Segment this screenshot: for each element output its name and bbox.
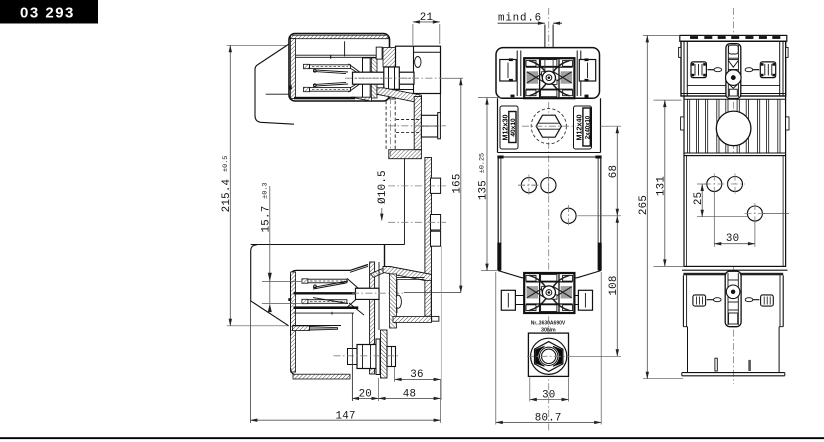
- svg-text:135 ±0.25: 135 ±0.25: [478, 153, 490, 200]
- svg-text:40x10: 40x10: [510, 118, 517, 137]
- svg-text:48: 48: [403, 389, 416, 401]
- svg-text:36: 36: [410, 369, 423, 381]
- svg-text:30: 30: [726, 233, 739, 245]
- svg-text:21: 21: [420, 12, 433, 24]
- svg-text:108: 108: [608, 275, 620, 295]
- svg-text:Ø10.5: Ø10.5: [377, 170, 389, 204]
- svg-text:15.7 ±0.3: 15.7 ±0.3: [261, 183, 273, 233]
- svg-text:2x40x10: 2x40x10: [585, 115, 591, 139]
- svg-text:68: 68: [608, 165, 620, 178]
- svg-text:20: 20: [359, 389, 372, 401]
- svg-text:265: 265: [638, 195, 650, 215]
- svg-text:30: 30: [542, 389, 555, 401]
- svg-text:mind.6: mind.6: [498, 13, 542, 25]
- svg-text:215.4 ±0.5: 215.4 ±0.5: [221, 156, 233, 213]
- svg-text:M12x40: M12x40: [574, 115, 583, 141]
- svg-text:03 293: 03 293: [20, 5, 75, 22]
- svg-text:131: 131: [655, 176, 667, 196]
- svg-text:25: 25: [693, 192, 705, 205]
- svg-text:165: 165: [451, 173, 463, 193]
- svg-text:80.7: 80.7: [535, 412, 562, 424]
- svg-text:Nr..3630A690V: Nr..3630A690V: [531, 320, 566, 326]
- svg-text:147: 147: [335, 411, 355, 423]
